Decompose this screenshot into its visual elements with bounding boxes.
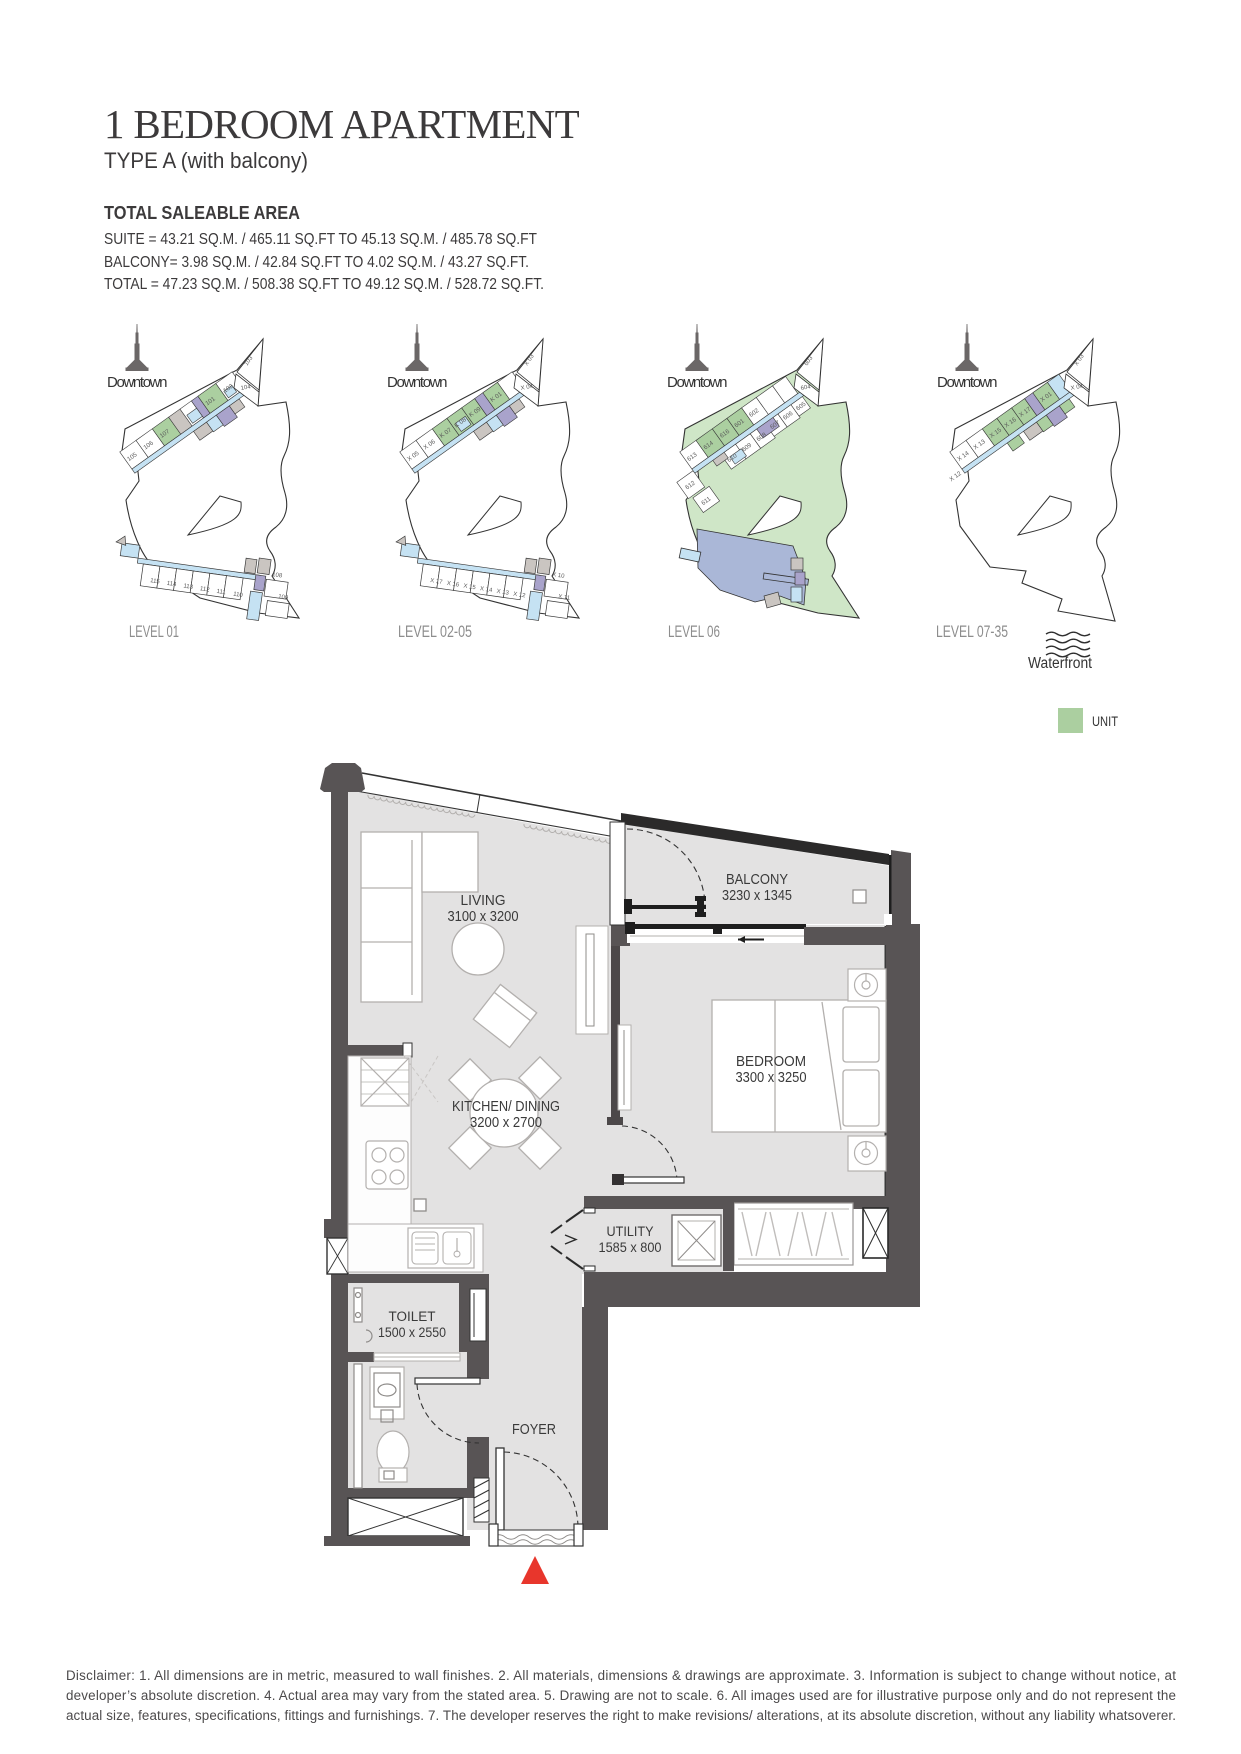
svg-text:Downtown: Downtown (107, 374, 168, 391)
svg-text:Downtown: Downtown (937, 374, 998, 391)
svg-text:BEDROOM: BEDROOM (736, 1054, 806, 1070)
svg-text:Waterfront: Waterfront (1028, 655, 1093, 672)
svg-text:TOILET: TOILET (389, 1309, 436, 1324)
svg-text:3100 x 3200: 3100 x 3200 (448, 909, 519, 925)
svg-text:Downtown: Downtown (667, 374, 728, 391)
svg-text:TOTAL = 47.23 SQ.M. / 508.38 S: TOTAL = 47.23 SQ.M. / 508.38 SQ.FT TO 49… (104, 276, 544, 293)
svg-text:1 BEDROOM APARTMENT: 1 BEDROOM APARTMENT (104, 101, 580, 147)
svg-text:UTILITY: UTILITY (607, 1224, 654, 1239)
svg-text:1500 x 2550: 1500 x 2550 (378, 1325, 446, 1340)
svg-text:LEVEL 01: LEVEL 01 (129, 622, 179, 641)
svg-text:UNIT: UNIT (1092, 714, 1118, 729)
svg-text:BALCONY: BALCONY (726, 872, 788, 888)
svg-text:3200 x 2700: 3200 x 2700 (470, 1115, 542, 1131)
svg-text:FOYER: FOYER (512, 1422, 556, 1438)
svg-text:1585 x 800: 1585 x 800 (599, 1240, 662, 1255)
svg-text:developer’s absolute discretio: developer’s absolute discretion. 4. Actu… (66, 1688, 1176, 1703)
svg-text:3300 x 3250: 3300 x 3250 (736, 1070, 807, 1086)
svg-text:LEVEL 06: LEVEL 06 (668, 622, 720, 641)
svg-text:Downtown: Downtown (387, 374, 448, 391)
svg-text:LEVEL 02-05: LEVEL 02-05 (398, 622, 472, 641)
svg-text:SUITE = 43.21 SQ.M. / 465.11 S: SUITE = 43.21 SQ.M. / 465.11 SQ.FT TO 45… (104, 231, 537, 248)
svg-text:KITCHEN/ DINING: KITCHEN/ DINING (452, 1099, 560, 1115)
svg-text:LIVING: LIVING (461, 893, 506, 909)
svg-text:BALCONY= 3.98 SQ.M. / 42.84 SQ: BALCONY= 3.98 SQ.M. / 42.84 SQ.FT TO 4.0… (104, 254, 529, 271)
svg-text:TYPE A (with balcony): TYPE A (with balcony) (104, 148, 308, 173)
svg-text:TOTAL SALEABLE AREA: TOTAL SALEABLE AREA (104, 203, 300, 223)
svg-text:actual size, features, specifi: actual size, features, specifications, f… (66, 1708, 1176, 1723)
svg-text:3230 x 1345: 3230 x 1345 (722, 888, 792, 904)
svg-text:LEVEL 07-35: LEVEL 07-35 (936, 622, 1008, 641)
svg-text:Disclaimer: 1. All dimensions: Disclaimer: 1. All dimensions are in met… (66, 1668, 1176, 1683)
